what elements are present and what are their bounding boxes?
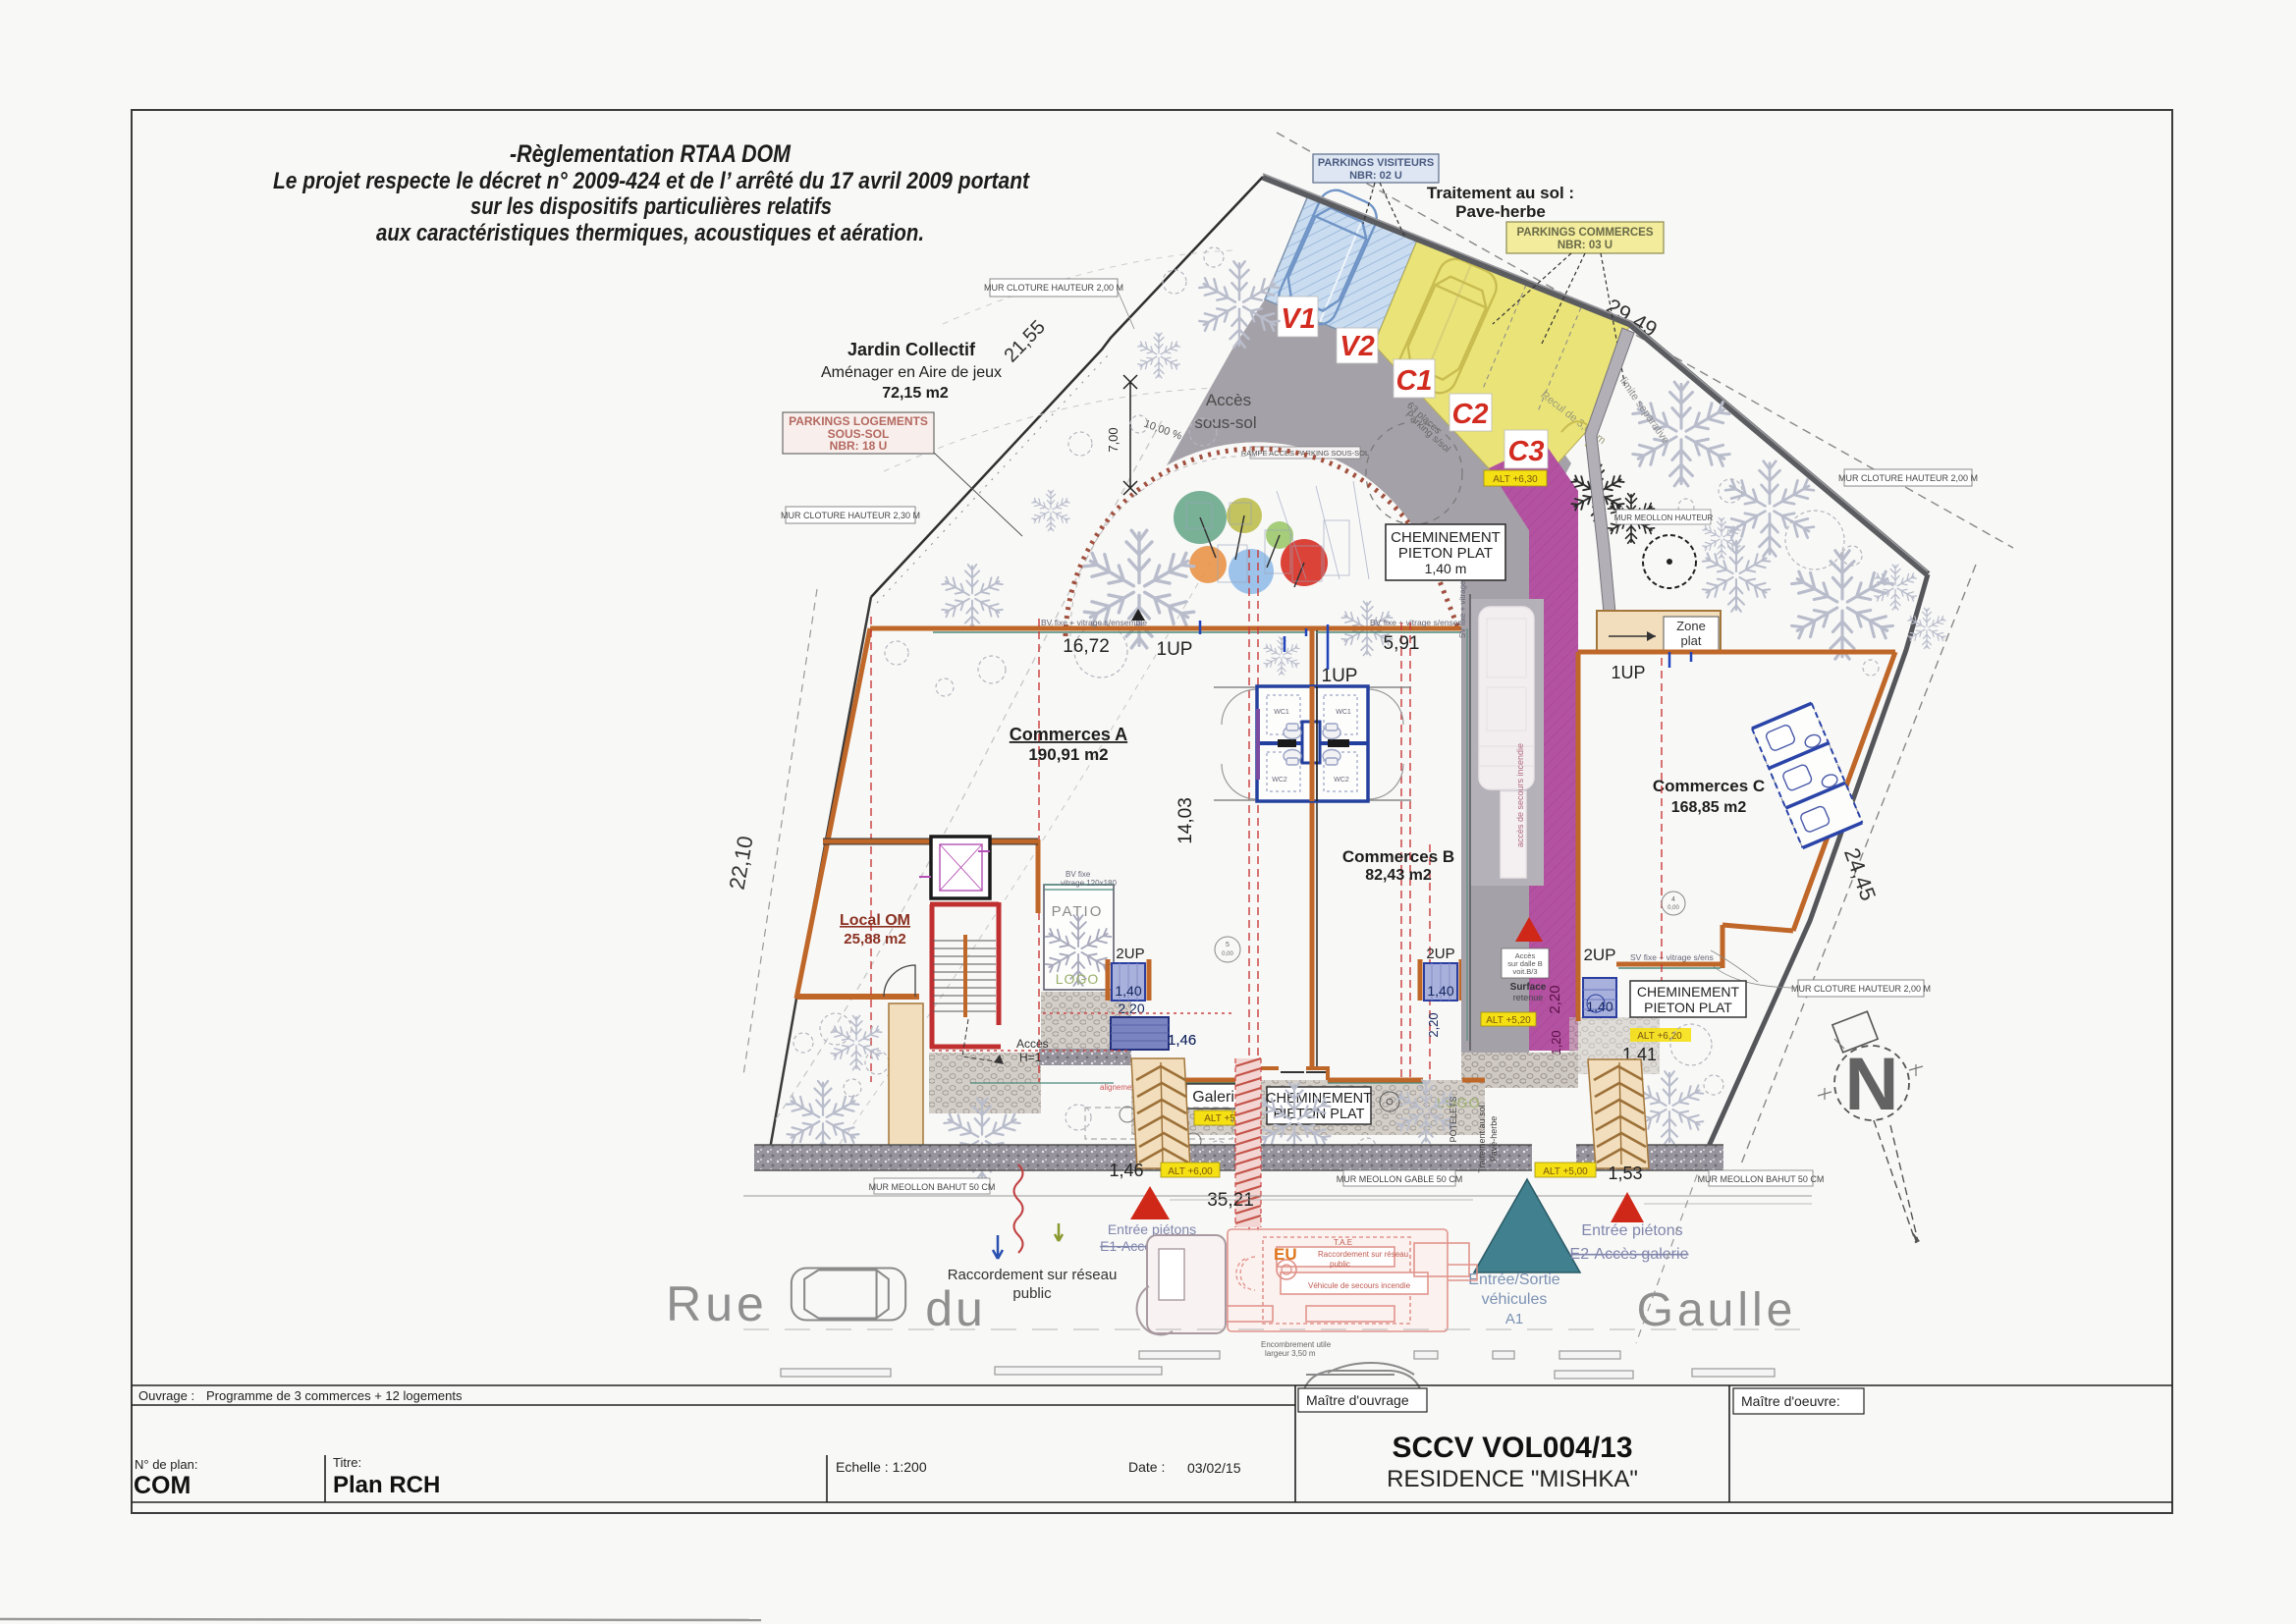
svg-text:Entrée piétons: Entrée piétons xyxy=(1581,1222,1682,1239)
svg-text:MUR CLOTURE HAUTEUR 2,00 M: MUR CLOTURE HAUTEUR 2,00 M xyxy=(1838,473,1978,483)
svg-text:Titre:: Titre: xyxy=(333,1455,361,1470)
svg-text:WC1: WC1 xyxy=(1336,709,1351,716)
svg-text:Raccordement sur réseau: Raccordement sur réseau xyxy=(1318,1250,1408,1259)
svg-text:CHEMINEMENT: CHEMINEMENT xyxy=(1637,984,1740,1000)
svg-text:voit.B/3: voit.B/3 xyxy=(1512,967,1537,976)
svg-text:largeur 3,50 m: largeur 3,50 m xyxy=(1265,1349,1316,1358)
svg-text:CHEMINEMENT: CHEMINEMENT xyxy=(1266,1091,1372,1107)
svg-text:H=1: H=1 xyxy=(1019,1051,1042,1064)
svg-text:14,03: 14,03 xyxy=(1175,797,1196,844)
svg-text:PARKINGS VISITEURS: PARKINGS VISITEURS xyxy=(1318,157,1434,169)
svg-text:Accès: Accès xyxy=(1206,391,1251,409)
svg-text:ALT +5,20: ALT +5,20 xyxy=(1486,1015,1531,1026)
svg-text:2UP: 2UP xyxy=(1583,946,1615,964)
svg-text:E2-Accès galerie: E2-Accès galerie xyxy=(1570,1246,1689,1263)
svg-text:168,85 m2: 168,85 m2 xyxy=(1671,799,1747,816)
svg-text:Commerces B: Commerces B xyxy=(1342,847,1454,866)
svg-text:ALT +6,00: ALT +6,00 xyxy=(1168,1166,1213,1177)
svg-text:N: N xyxy=(1845,1043,1899,1126)
svg-text:C2: C2 xyxy=(1451,399,1488,430)
svg-text:SV fixe + vitrage s/ens: SV fixe + vitrage s/ens xyxy=(1630,952,1714,962)
svg-text:Rue: Rue xyxy=(666,1276,768,1331)
svg-text:plat: plat xyxy=(1681,633,1702,648)
svg-text:2UP: 2UP xyxy=(1426,946,1454,962)
svg-text:Surface: Surface xyxy=(1510,982,1547,993)
svg-text:1,20: 1,20 xyxy=(1549,1030,1563,1055)
svg-text:1UP: 1UP xyxy=(1611,663,1645,682)
svg-text:PARKINGS COMMERCES: PARKINGS COMMERCES xyxy=(1516,227,1653,239)
svg-text:public: public xyxy=(1012,1285,1052,1302)
svg-text:ALT +6,20: ALT +6,20 xyxy=(1637,1031,1682,1042)
svg-text:PIETON PLAT: PIETON PLAT xyxy=(1398,545,1493,562)
svg-text:véhicules: véhicules xyxy=(1482,1291,1548,1308)
svg-text:7,00: 7,00 xyxy=(1106,427,1121,452)
svg-text:MUR CLOTURE HAUTEUR 2,00 M: MUR CLOTURE HAUTEUR 2,00 M xyxy=(984,283,1123,293)
svg-text:5: 5 xyxy=(1226,942,1230,948)
svg-text:1,46: 1,46 xyxy=(1168,1032,1196,1049)
svg-text:retenue: retenue xyxy=(1513,993,1544,1002)
svg-text:1UP: 1UP xyxy=(1157,639,1193,660)
svg-text:PARKINGS LOGEMENTS: PARKINGS LOGEMENTS xyxy=(789,414,928,428)
svg-text:NBR: 18 U: NBR: 18 U xyxy=(830,439,888,453)
svg-text:Pave-herbe: Pave-herbe xyxy=(1455,202,1546,221)
svg-text:Zone: Zone xyxy=(1676,619,1706,633)
svg-text:WC2: WC2 xyxy=(1272,777,1287,784)
svg-text:Gaulle: Gaulle xyxy=(1637,1284,1797,1336)
svg-text:C3: C3 xyxy=(1507,436,1544,467)
svg-text:Commerces A: Commerces A xyxy=(1010,725,1127,744)
svg-text:1,40 m: 1,40 m xyxy=(1425,561,1467,576)
svg-text:MUR CLOTURE HAUTEUR 2,30 M: MUR CLOTURE HAUTEUR 2,30 M xyxy=(781,511,920,520)
svg-text:35,21: 35,21 xyxy=(1207,1190,1254,1211)
svg-text:CHEMINEMENT: CHEMINEMENT xyxy=(1391,529,1501,546)
svg-text:Encombrement utile: Encombrement utile xyxy=(1261,1340,1332,1349)
svg-text:BV fixe: BV fixe xyxy=(1066,870,1091,879)
svg-text:Pavé-herbe: Pavé-herbe xyxy=(1489,1116,1499,1163)
svg-text:C1: C1 xyxy=(1395,365,1432,397)
svg-text:Local OM: Local OM xyxy=(840,912,910,929)
svg-text:PIETON PLAT: PIETON PLAT xyxy=(1274,1107,1365,1122)
svg-text:V1: V1 xyxy=(1281,303,1315,335)
svg-text:2UP: 2UP xyxy=(1116,946,1144,962)
svg-text:0,00: 0,00 xyxy=(1222,951,1233,957)
svg-text:Accès: Accès xyxy=(1016,1037,1049,1051)
svg-text:Maître d'oeuvre:: Maître d'oeuvre: xyxy=(1741,1393,1840,1409)
svg-text:Maître d'ouvrage: Maître d'ouvrage xyxy=(1306,1392,1409,1408)
svg-text:Ouvrage :: Ouvrage : xyxy=(138,1388,194,1403)
svg-text:Traitement au sol :: Traitement au sol : xyxy=(1427,184,1574,202)
svg-text:Véhicule de secours incendie: Véhicule de secours incendie xyxy=(1308,1281,1411,1290)
svg-text:V2: V2 xyxy=(1339,331,1374,362)
svg-text:82,43 m2: 82,43 m2 xyxy=(1365,867,1432,884)
svg-text:COM: COM xyxy=(134,1472,191,1499)
svg-text:ALT +5,00: ALT +5,00 xyxy=(1543,1166,1588,1177)
svg-text:1,40: 1,40 xyxy=(1115,983,1141,999)
svg-text:Echelle : 1:200: Echelle : 1:200 xyxy=(836,1459,927,1475)
svg-text:25,88 m2: 25,88 m2 xyxy=(844,931,905,947)
svg-text:Traitement au sol: Traitement au sol xyxy=(1477,1105,1487,1172)
svg-text:SCCV VOL004/13: SCCV VOL004/13 xyxy=(1392,1432,1632,1464)
svg-text:PATIO: PATIO xyxy=(1052,903,1104,920)
svg-text:N° de plan:: N° de plan: xyxy=(135,1457,197,1472)
svg-text:MUR MEOLLON GABLE 50 CM: MUR MEOLLON GABLE 50 CM xyxy=(1337,1174,1463,1184)
svg-text:RESIDENCE "MISHKA": RESIDENCE "MISHKA" xyxy=(1387,1466,1638,1492)
svg-text:1,53: 1,53 xyxy=(1608,1164,1642,1183)
svg-text:2,20: 2,20 xyxy=(1547,985,1563,1013)
svg-text:2,20: 2,20 xyxy=(1426,1012,1441,1037)
svg-text:0,00: 0,00 xyxy=(1667,905,1679,911)
svg-text:4: 4 xyxy=(1671,896,1675,903)
svg-text:16,72: 16,72 xyxy=(1063,636,1110,657)
svg-text:accès de secours incendie: accès de secours incendie xyxy=(1515,743,1525,847)
svg-text:Le projet respecte le décret n: Le projet respecte le décret n° 2009-424… xyxy=(273,168,1030,194)
svg-text:Plan RCH: Plan RCH xyxy=(333,1472,440,1498)
svg-text:Programme de 3 commerces + 12: Programme de 3 commerces + 12 logements xyxy=(206,1388,463,1403)
svg-text:190,91 m2: 190,91 m2 xyxy=(1028,745,1108,764)
svg-text:BV fixe + vitrage s/ensemble: BV fixe + vitrage s/ensemble xyxy=(1041,618,1147,627)
svg-text:Entrée/Sortie: Entrée/Sortie xyxy=(1468,1272,1559,1288)
svg-text:LOGO: LOGO xyxy=(1056,971,1099,987)
svg-text:aux caractéristiques thermique: aux caractéristiques thermiques, acousti… xyxy=(376,220,924,246)
svg-text:vitrage 120x180: vitrage 120x180 xyxy=(1061,879,1117,888)
svg-text:Commerces C: Commerces C xyxy=(1653,777,1765,795)
svg-text:Aménager en Aire de jeux: Aménager en Aire de jeux xyxy=(821,364,1002,381)
svg-text:WC1: WC1 xyxy=(1274,709,1289,716)
svg-text:1,46: 1,46 xyxy=(1109,1161,1143,1180)
svg-text:public: public xyxy=(1330,1260,1350,1269)
svg-text:POTELETS: POTELETS xyxy=(1449,1096,1458,1142)
svg-text:MUR MEOLLON HAUTEUR: MUR MEOLLON HAUTEUR xyxy=(1614,514,1714,522)
svg-text:NBR: 03 U: NBR: 03 U xyxy=(1558,240,1613,251)
svg-text:1,40: 1,40 xyxy=(1586,999,1613,1014)
svg-text:1,40: 1,40 xyxy=(1427,983,1453,999)
svg-text:sous-sol: sous-sol xyxy=(1194,413,1256,432)
svg-text:Jardin Collectif: Jardin Collectif xyxy=(847,340,976,359)
svg-text:5,91: 5,91 xyxy=(1384,633,1420,654)
svg-text:PIETON PLAT: PIETON PLAT xyxy=(1644,1000,1732,1015)
svg-text:03/02/15: 03/02/15 xyxy=(1187,1460,1241,1476)
svg-text:ALT +6,30: ALT +6,30 xyxy=(1493,474,1538,485)
svg-text:EU: EU xyxy=(1274,1245,1297,1264)
svg-text:-Règlementation RTAA DOM: -Règlementation RTAA DOM xyxy=(510,140,792,168)
svg-text:Date :: Date : xyxy=(1128,1459,1165,1475)
svg-text:MUR MEOLLON BAHUT 50 CM: MUR MEOLLON BAHUT 50 CM xyxy=(869,1182,996,1192)
svg-text:72,15 m2: 72,15 m2 xyxy=(882,385,949,402)
svg-text:MUR MEOLLON BAHUT 50 CM: MUR MEOLLON BAHUT 50 CM xyxy=(1698,1174,1825,1184)
svg-text:du: du xyxy=(925,1281,986,1336)
svg-text:A1: A1 xyxy=(1505,1311,1523,1327)
svg-text:WC2: WC2 xyxy=(1334,777,1349,784)
svg-text:NBR: 02 U: NBR: 02 U xyxy=(1349,170,1402,182)
svg-text:MUR CLOTURE HAUTEUR 2,00 M: MUR CLOTURE HAUTEUR 2,00 M xyxy=(1791,984,1931,994)
svg-text:T.A.E: T.A.E xyxy=(1334,1238,1352,1247)
svg-text:sur les dispositifs particuliè: sur les dispositifs particulières relati… xyxy=(470,193,832,220)
